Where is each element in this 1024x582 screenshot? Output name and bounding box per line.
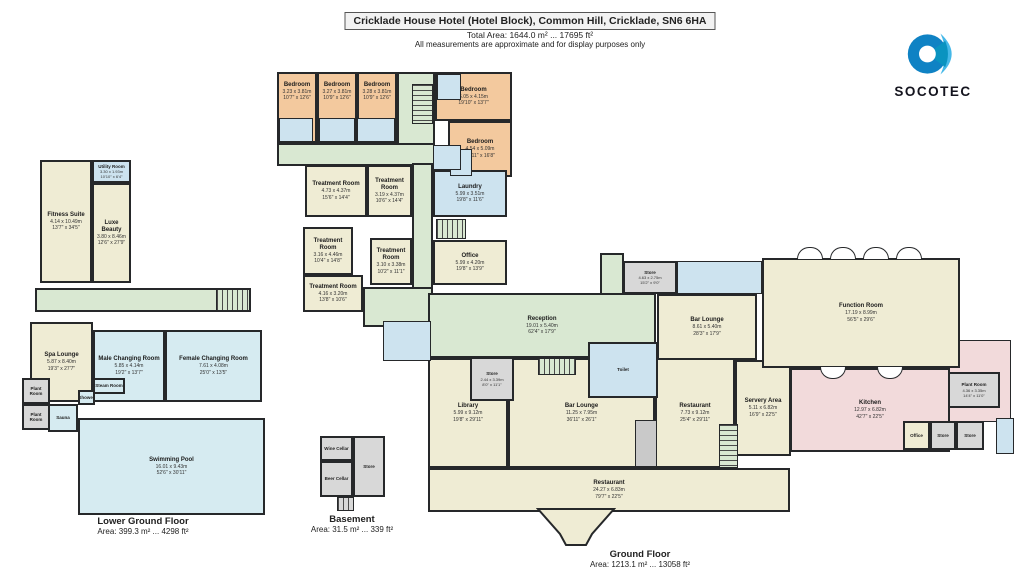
socotec-brand-text: SOCOTEC [893, 84, 973, 99]
floor-label-basement: Basement Area: 31.5 m² ... 339 ft² [311, 514, 393, 534]
floor-label-lower-ground: Lower Ground Floor Area: 399.3 m² ... 42… [97, 516, 188, 536]
total-area: Total Area: 1644.0 m² ... 17695 ft² [467, 30, 593, 40]
text-layer: Cricklade House Hotel (Hotel Block), Com… [0, 0, 1024, 582]
socotec-logo-icon [905, 30, 961, 78]
plan-title: Cricklade House Hotel (Hotel Block), Com… [345, 12, 716, 30]
disclaimer: All measurements are approximate and for… [415, 40, 645, 49]
socotec-logo: SOCOTEC [893, 30, 973, 99]
floor-label-ground: Ground Floor Area: 1213.1 m² ... 13058 f… [590, 549, 690, 569]
floor-plan-page: Bedroom3.23 x 3.81m10'7" x 12'6"Bedroom3… [0, 0, 1024, 582]
